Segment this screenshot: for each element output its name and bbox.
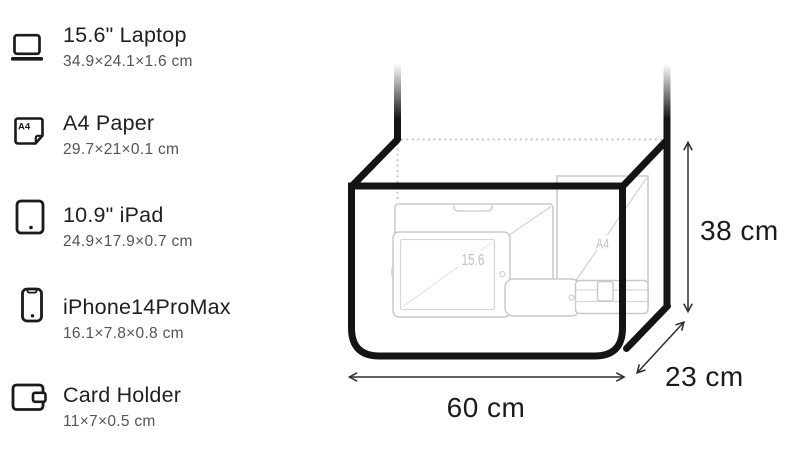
bag-top-left-edge — [353, 140, 398, 186]
ipad-outline — [392, 232, 510, 317]
size-comparison-infographic: 15.6" Laptop 34.9×24.1×1.6 cm A4 A4 Pape… — [0, 0, 800, 455]
bag-dimension-diagram: 60 cm 38 cm 23 cm 15.6 A4 — [0, 0, 800, 455]
bag-depth-label: 23 cm — [665, 361, 744, 392]
iphone-outline — [505, 279, 580, 316]
a4-size-label: A4 — [596, 236, 609, 252]
bag-width-label: 60 cm — [447, 392, 526, 423]
bag-height-label: 38 cm — [700, 215, 779, 246]
laptop-size-label: 15.6 — [462, 252, 485, 269]
shoulder-strap-right — [664, 64, 671, 140]
card-holder-outline — [576, 281, 649, 314]
shoulder-strap-left — [394, 64, 401, 140]
